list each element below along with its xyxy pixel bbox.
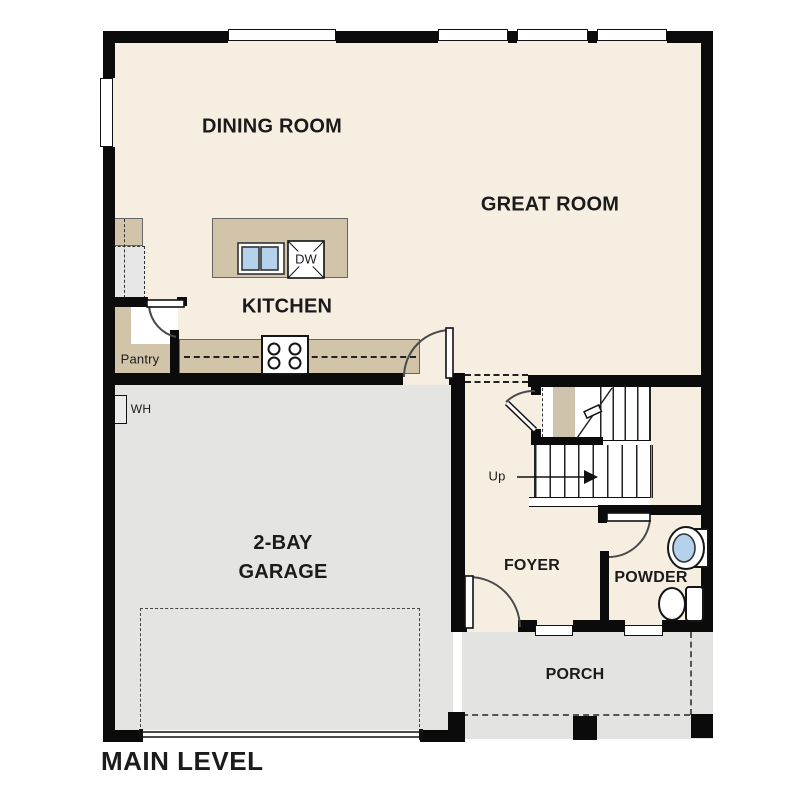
stove-burner-3 [269,358,280,369]
closet-door-leaf [507,403,535,430]
closet-door-arc [506,391,535,402]
stove-burner-2 [290,344,301,355]
floor-plan-canvas: DINING ROOM GREAT ROOM KITCHEN 2-BAY GAR… [0,0,810,810]
plan-title: MAIN LEVEL [101,746,263,777]
up-label: Up [488,469,505,484]
water-heater-label: WH [131,402,151,416]
stove-burner-1 [269,344,280,355]
garage-label: 2-BAY GARAGE [239,529,328,587]
pantry-door-leaf [147,300,184,307]
pantry-door-arc [149,306,176,337]
stove-burner-4 [290,358,301,369]
toilet-bowl [659,588,685,620]
kitchen-label: KITCHEN [242,296,332,319]
toilet-tank [686,587,703,621]
garage-door-line [141,732,421,737]
stair-break-tick [584,405,601,418]
up-arrow-head [584,470,598,484]
porch-label: PORCH [546,666,605,684]
front-door-arc [469,577,520,627]
garage-door-cap-right [419,729,423,740]
dining-room-label: DINING ROOM [202,116,342,139]
garage-entry-door-leaf [446,328,453,378]
fixtures-overlay [0,0,810,810]
great-room-label: GREAT ROOM [481,194,619,217]
powder-door-leaf [607,513,650,521]
foyer-label: FOYER [504,557,560,575]
stove [262,336,308,374]
island-sink-basin-right [261,247,278,270]
garage-label-line2: GARAGE [239,558,328,587]
garage-entry-door-arc [404,330,450,377]
garage-door-cap-left [139,729,143,740]
front-door-leaf [465,576,473,628]
powder-door-arc [609,520,650,557]
pantry-label: Pantry [121,352,160,367]
powder-label: POWDER [614,569,687,587]
garage-label-line1: 2-BAY [239,529,328,558]
powder-sink-basin [673,534,695,562]
island-sink-basin-left [242,247,259,270]
dishwasher-label: DW [293,252,319,267]
